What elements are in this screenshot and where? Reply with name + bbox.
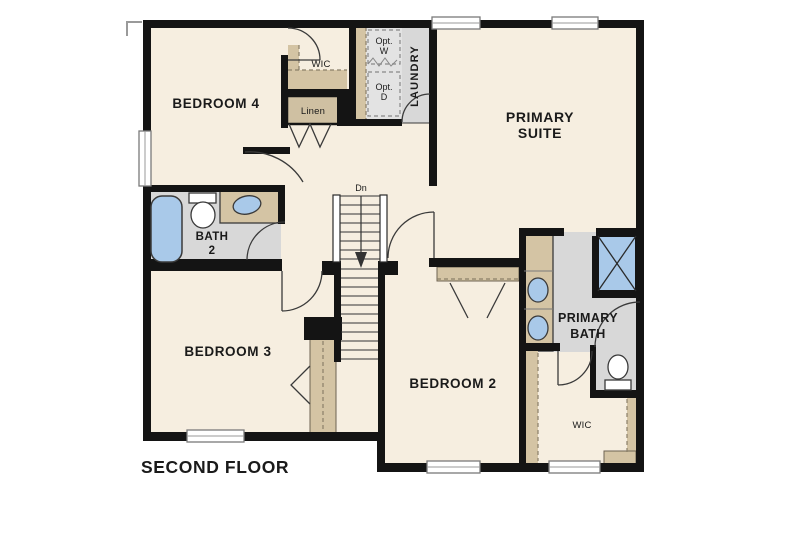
- stair-rail-right: [380, 195, 387, 262]
- opt-dryer-label-line2: D: [381, 92, 388, 102]
- wall-right: [636, 20, 644, 472]
- wall-bedroom4-stub: [243, 147, 290, 154]
- bath2-label-line1: BATH: [196, 231, 229, 243]
- toilet-tank-primary: [605, 380, 631, 390]
- wic-bedroom4-label: WIC: [311, 59, 330, 70]
- wall-wic4-south: [281, 89, 356, 96]
- stairs-down-label: Dn: [355, 183, 367, 193]
- bedroom4-label: BEDROOM 4: [172, 96, 259, 111]
- primary-suite-label-line1: PRIMARY: [506, 109, 574, 125]
- bedroom3-label: BEDROOM 3: [184, 344, 271, 359]
- wic-corner-step: [604, 451, 636, 464]
- wall-stair-right: [378, 261, 385, 471]
- primary-wic-shelf-left: [526, 351, 538, 463]
- wall-suite-west: [429, 20, 437, 186]
- wall-bedroom2-north: [429, 258, 519, 267]
- floor-areas: [143, 20, 644, 471]
- bedroom2-closet-shelf: [437, 267, 519, 281]
- wall-opt-south: [337, 119, 402, 126]
- bedroom2-label: BEDROOM 2: [409, 376, 496, 391]
- primary-wic-shelf-right: [627, 397, 636, 453]
- opt-dryer-label-line1: Opt.: [375, 82, 392, 92]
- primary-bath-label-line2: BATH: [570, 327, 605, 341]
- primary-suite-label-line2: SUITE: [518, 125, 562, 141]
- wall-wic-north: [519, 343, 560, 351]
- opt-washer-label-line2: W: [380, 46, 389, 56]
- primary-bath-label-line1: PRIMARY: [558, 311, 618, 325]
- wall-bedroom3-bottom: [143, 432, 385, 441]
- bedroom4-wic-shelf-bottom: [288, 70, 347, 92]
- linen-label: Linen: [301, 106, 325, 117]
- wall-wic4-east: [349, 20, 356, 96]
- wall-bath2-north: [143, 185, 285, 192]
- wic-primary-label: WIC: [572, 420, 591, 431]
- roofline-stub: [127, 22, 142, 36]
- wall-bottom: [377, 463, 644, 472]
- wall-left: [143, 20, 151, 440]
- toilet-bowl-primary: [608, 355, 628, 379]
- wall-suite-south-b: [596, 228, 644, 236]
- laundry-label: LAUNDRY: [409, 45, 421, 107]
- toilet-bowl-bath2: [191, 202, 215, 228]
- bathtub: [151, 196, 182, 262]
- floor-plan-drawing: BEDROOM 4 BEDROOM 3 BEDROOM 2 PRIMARY SU…: [0, 0, 810, 533]
- opt-washer-label-line1: Opt.: [375, 36, 392, 46]
- wall-toilet-room-south: [590, 390, 644, 398]
- vanity-sink-1: [528, 278, 548, 302]
- stair-rail-left: [333, 195, 340, 262]
- wall-shower-south: [592, 291, 644, 298]
- wall-stair-left: [334, 261, 341, 362]
- bath2-label-line2: 2: [209, 245, 216, 257]
- wall-bath2-east: [278, 185, 285, 224]
- floor-plan-page: BEDROOM 4 BEDROOM 3 BEDROOM 2 PRIMARY SU…: [0, 0, 810, 533]
- floor-title: SECOND FLOOR: [141, 457, 289, 477]
- shower: [598, 236, 636, 291]
- vanity-sink-2: [528, 316, 548, 340]
- wall-closet3-header: [304, 317, 342, 340]
- wall-toilet-room-west: [590, 345, 596, 397]
